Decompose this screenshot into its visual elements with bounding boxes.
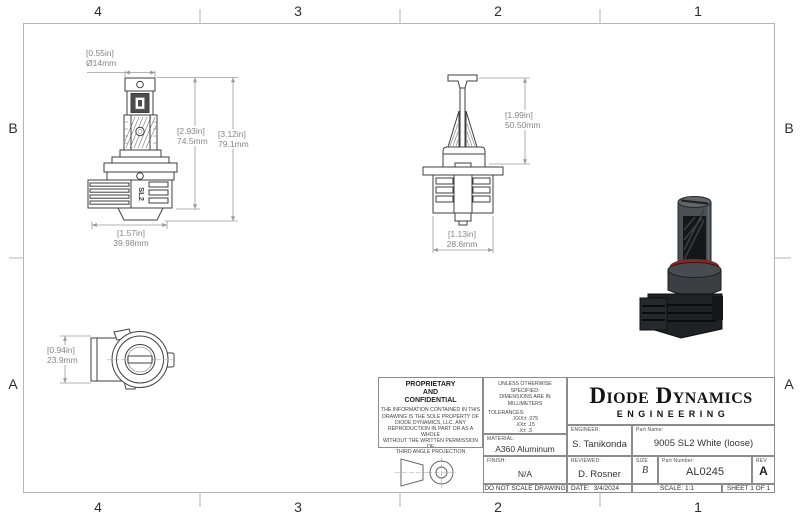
reviewed-cell: REVIEWED: D. Rosner xyxy=(567,456,632,484)
sheet-text: SHEET 1 OF 1 xyxy=(727,485,770,492)
date-value: 3/4/2024 xyxy=(594,485,619,492)
drawing-sheet: 4 3 2 1 4 3 2 1 B A B A xyxy=(0,0,800,518)
reviewed-label: REVIEWED: xyxy=(571,458,601,464)
rev-value: A xyxy=(753,464,774,478)
proprietary-title: PROPRIETARY AND CONFIDENTIAL xyxy=(379,381,482,404)
dim-front-width: [1.57in] 39.98mm xyxy=(103,228,159,248)
material-label: MATERIAL: xyxy=(487,436,515,442)
engineer-value: S. Tanikonda xyxy=(568,439,631,450)
material-value: A360 Aluminum xyxy=(484,444,566,454)
finish-value: N/A xyxy=(484,469,566,479)
finish-label: FINISH: xyxy=(487,458,506,464)
scale-text: SCALE: 1:1 xyxy=(660,485,694,492)
spec-line1: UNLESS OTHERWISE SPECIFIED: xyxy=(484,381,566,394)
dim-side-width: [1.13in] 28.6mm xyxy=(434,229,490,249)
size-label: SIZE xyxy=(636,458,648,464)
proprietary-body: THE INFORMATION CONTAINED IN THIS DRAWIN… xyxy=(379,407,482,448)
view-side xyxy=(423,75,503,225)
date-label: DATE: xyxy=(571,485,590,492)
size-value: B xyxy=(633,465,657,476)
do-not-scale-cell: DO NOT SCALE DRAWING xyxy=(483,484,567,493)
part-number-value: AL0245 xyxy=(659,466,751,478)
part-name-label: Part Name: xyxy=(636,427,663,433)
view-photo xyxy=(640,197,723,339)
engineer-cell: ENGINEER: S. Tanikonda xyxy=(567,425,632,456)
part-name-value: 9005 SL2 White (loose) xyxy=(633,438,774,449)
dim-front-diameter: [0.55in] Ø14mm xyxy=(86,48,116,68)
dim-front-height-body: [2.93in] 74.5mm xyxy=(176,126,209,146)
logo-cell: Diode Dynamics ENGINEERING xyxy=(567,377,775,425)
proprietary-cell: PROPRIETARY AND CONFIDENTIAL THE INFORMA… xyxy=(378,377,483,448)
part-number-label: Part Number: xyxy=(662,458,694,464)
size-cell: SIZE B xyxy=(632,456,658,484)
view-front: SL2 xyxy=(88,78,177,220)
engineer-label: ENGINEER: xyxy=(571,427,600,433)
view-top xyxy=(91,329,174,389)
part-name-cell: Part Name: 9005 SL2 White (loose) xyxy=(632,425,775,456)
material-cell: MATERIAL: A360 Aluminum xyxy=(483,434,567,456)
part-number-cell: Part Number: AL0245 xyxy=(658,456,752,484)
dim-front-height-total: [3.12in] 79.1mm xyxy=(217,129,250,149)
company-logo: Diode Dynamics xyxy=(589,384,752,407)
company-logo-sub: ENGINEERING xyxy=(613,409,730,419)
rev-cell: REV A xyxy=(752,456,775,484)
bulb-logo-text: SL2 xyxy=(137,187,146,201)
specs-cell: UNLESS OTHERWISE SPECIFIED: DIMENSIONS A… xyxy=(483,377,567,434)
scale-cell: SCALE: 1:1 xyxy=(632,484,722,493)
dim-top-height: [0.94in] 23.9mm xyxy=(46,345,79,365)
finish-cell: FINISH: N/A xyxy=(483,456,567,484)
do-not-scale-text: DO NOT SCALE DRAWING xyxy=(484,485,565,492)
sheet-cell: SHEET 1 OF 1 xyxy=(722,484,775,493)
reviewed-value: D. Rosner xyxy=(568,469,631,480)
dim-side-height: [1.99in] 50.50mm xyxy=(504,110,541,130)
date-cell: DATE: 3/4/2024 xyxy=(567,484,632,493)
spec-line2: DIMENSIONS ARE IN MILLIMETERS xyxy=(484,394,566,407)
title-block: PROPRIETARY AND CONFIDENTIAL THE INFORMA… xyxy=(378,377,775,493)
rev-label: REV xyxy=(756,458,767,464)
